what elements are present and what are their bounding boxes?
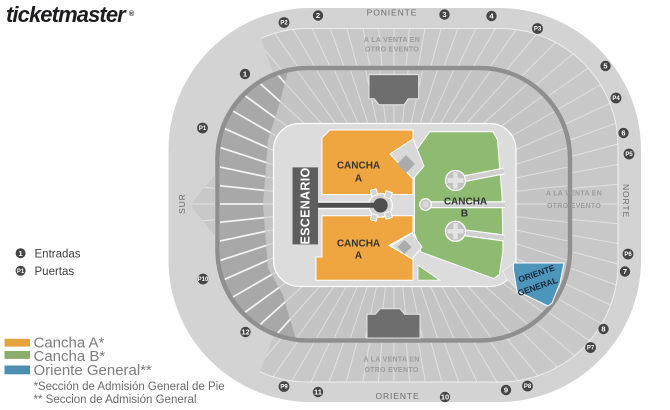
svg-text:1: 1 xyxy=(19,249,23,258)
svg-text:P2: P2 xyxy=(280,21,288,27)
svg-text:PONIENTE: PONIENTE xyxy=(367,7,418,17)
svg-text:** Seccion de Admisión General: ** Seccion de Admisión General xyxy=(34,394,197,406)
svg-text:P1: P1 xyxy=(17,269,25,275)
svg-text:CANCHA: CANCHA xyxy=(444,197,487,208)
svg-text:9: 9 xyxy=(504,386,508,395)
svg-text:CANCHA: CANCHA xyxy=(337,161,380,172)
svg-text:3: 3 xyxy=(442,10,446,19)
svg-text:B: B xyxy=(461,209,468,220)
svg-text:ticketmaster: ticketmaster xyxy=(6,2,127,27)
svg-text:Entradas: Entradas xyxy=(35,248,81,260)
svg-text:10: 10 xyxy=(441,393,449,402)
svg-text:P9: P9 xyxy=(280,385,288,391)
svg-text:A LA VENTA EN: A LA VENTA EN xyxy=(364,37,420,44)
svg-text:1: 1 xyxy=(243,70,247,79)
svg-text:P4: P4 xyxy=(612,96,620,102)
svg-text:OTRO EVENTO: OTRO EVENTO xyxy=(364,367,418,374)
svg-text:A: A xyxy=(355,174,362,185)
svg-text:Puertas: Puertas xyxy=(35,266,75,278)
svg-text:P7: P7 xyxy=(587,346,595,352)
svg-text:P8: P8 xyxy=(524,384,532,390)
svg-text:OTRO EVENTO: OTRO EVENTO xyxy=(365,47,419,54)
svg-text:P6: P6 xyxy=(624,252,632,258)
svg-text:®: ® xyxy=(129,9,135,18)
svg-text:CANCHA: CANCHA xyxy=(337,238,380,249)
svg-text:P3: P3 xyxy=(534,27,542,33)
svg-text:2: 2 xyxy=(316,11,320,20)
svg-text:A LA VENTA EN: A LA VENTA EN xyxy=(363,357,419,364)
svg-text:8: 8 xyxy=(601,325,605,334)
svg-text:Oriente General**: Oriente General** xyxy=(34,362,153,379)
svg-text:*Sección de Admisión General d: *Sección de Admisión General de Pie xyxy=(34,381,225,393)
svg-text:A: A xyxy=(355,251,362,262)
svg-text:P10: P10 xyxy=(198,277,209,283)
svg-text:SUR: SUR xyxy=(177,193,187,214)
svg-text:NORTE: NORTE xyxy=(621,184,631,218)
svg-text:P5: P5 xyxy=(625,152,633,158)
svg-text:P1: P1 xyxy=(199,126,207,132)
svg-text:6: 6 xyxy=(621,129,625,138)
svg-text:11: 11 xyxy=(314,388,322,397)
svg-text:ORIENTE: ORIENTE xyxy=(375,391,419,401)
svg-text:A LA VENTA EN: A LA VENTA EN xyxy=(546,191,602,198)
svg-text:7: 7 xyxy=(623,267,627,276)
svg-text:OTRO EVENTO: OTRO EVENTO xyxy=(547,203,601,210)
svg-text:12: 12 xyxy=(241,328,249,337)
svg-text:5: 5 xyxy=(603,62,607,71)
svg-text:ESCENARIO: ESCENARIO xyxy=(299,167,313,244)
